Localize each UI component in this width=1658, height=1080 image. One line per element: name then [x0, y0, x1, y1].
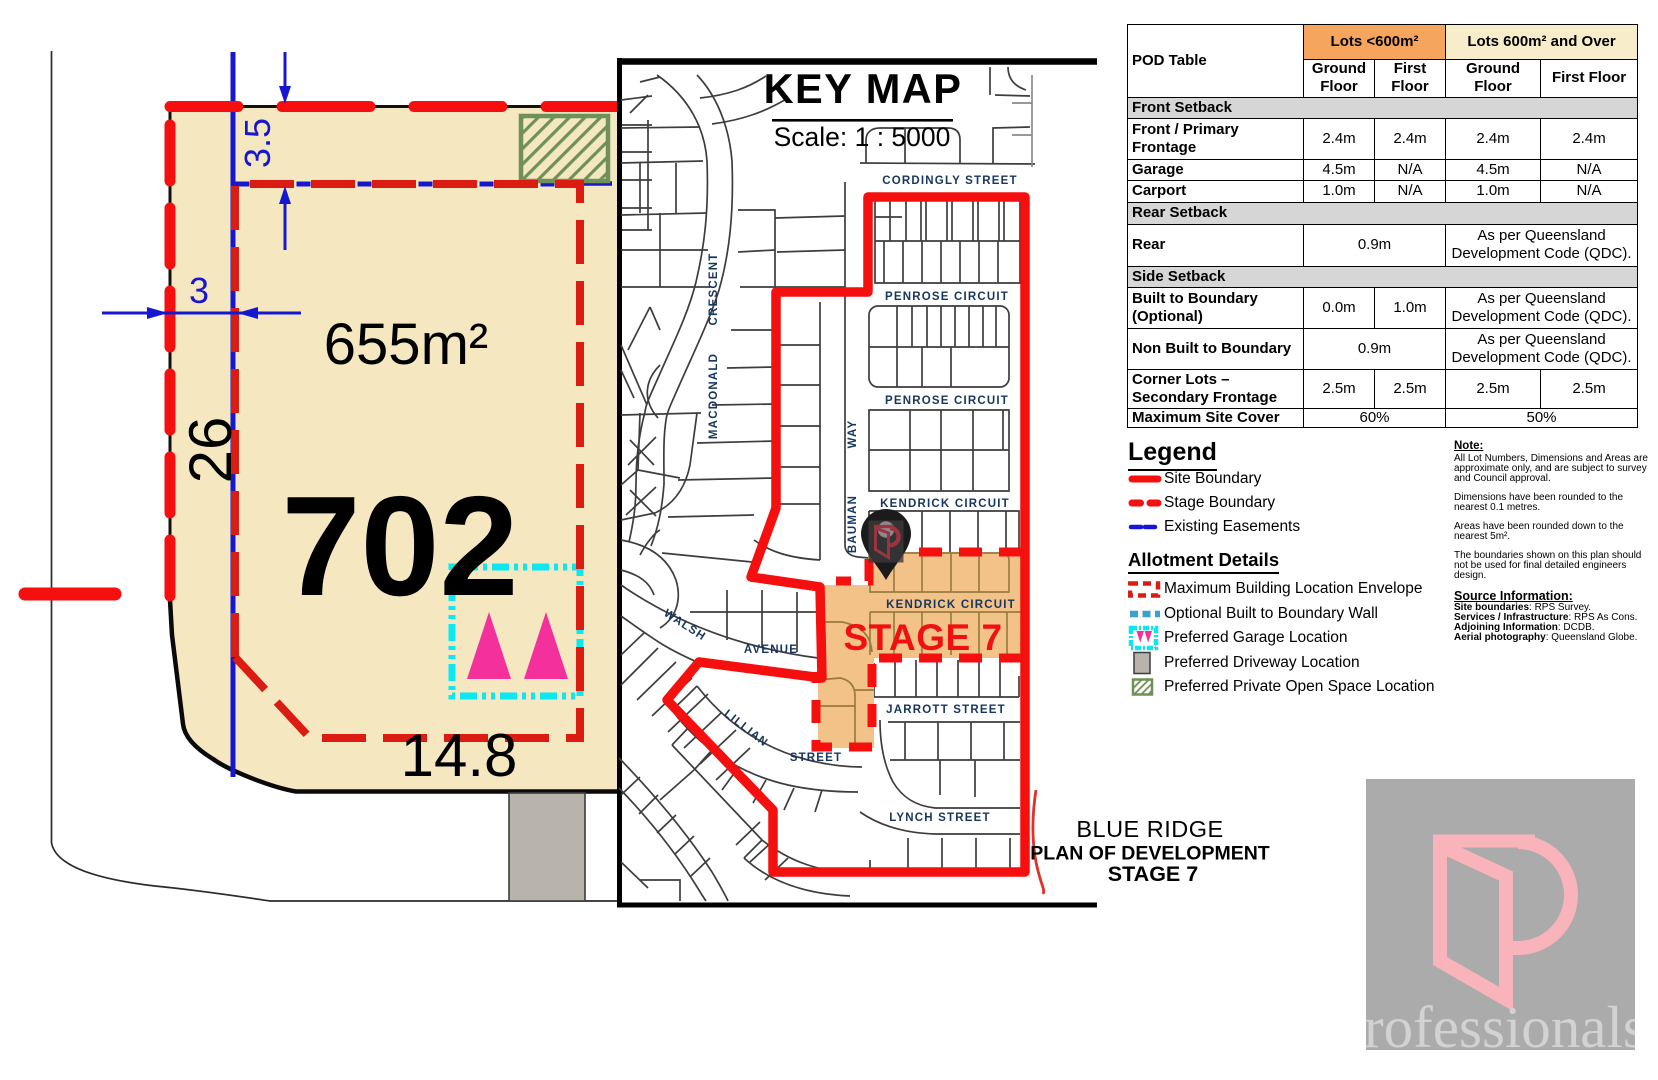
svg-text:WAY: WAY — [847, 420, 859, 449]
svg-text:AVENUE: AVENUE — [744, 644, 798, 656]
svg-text:rofessionals: rofessionals — [1364, 994, 1646, 1060]
svg-text:MACDONALD: MACDONALD — [708, 353, 720, 439]
svg-text:Scale: 1 : 5000: Scale: 1 : 5000 — [774, 122, 951, 152]
svg-text:STREET: STREET — [790, 752, 843, 764]
svg-text:PENROSE CIRCUIT: PENROSE CIRCUIT — [885, 395, 1009, 407]
svg-text:KENDRICK CIRCUIT: KENDRICK CIRCUIT — [880, 498, 1010, 510]
svg-text:PENROSE CIRCUIT: PENROSE CIRCUIT — [885, 291, 1009, 303]
svg-text:26: 26 — [177, 417, 244, 484]
svg-text:14.8: 14.8 — [401, 722, 518, 789]
svg-text:3: 3 — [189, 270, 209, 311]
svg-text:702: 702 — [282, 467, 519, 626]
svg-text:KEY MAP: KEY MAP — [764, 65, 963, 112]
svg-text:LYNCH STREET: LYNCH STREET — [889, 812, 991, 824]
svg-text:BAUMAN: BAUMAN — [847, 495, 859, 553]
svg-text:JARROTT STREET: JARROTT STREET — [886, 704, 1006, 716]
svg-text:STAGE 7: STAGE 7 — [1108, 862, 1198, 886]
svg-text:KENDRICK CIRCUIT: KENDRICK CIRCUIT — [886, 599, 1016, 611]
svg-text:BLUE RIDGE: BLUE RIDGE — [1076, 816, 1223, 842]
svg-text:3.5: 3.5 — [237, 118, 278, 168]
svg-text:CRESCENT: CRESCENT — [708, 253, 720, 326]
svg-text:655m²: 655m² — [324, 312, 488, 377]
svg-text:CORDINGLY STREET: CORDINGLY STREET — [882, 175, 1018, 187]
svg-text:STAGE 7: STAGE 7 — [843, 617, 1002, 658]
